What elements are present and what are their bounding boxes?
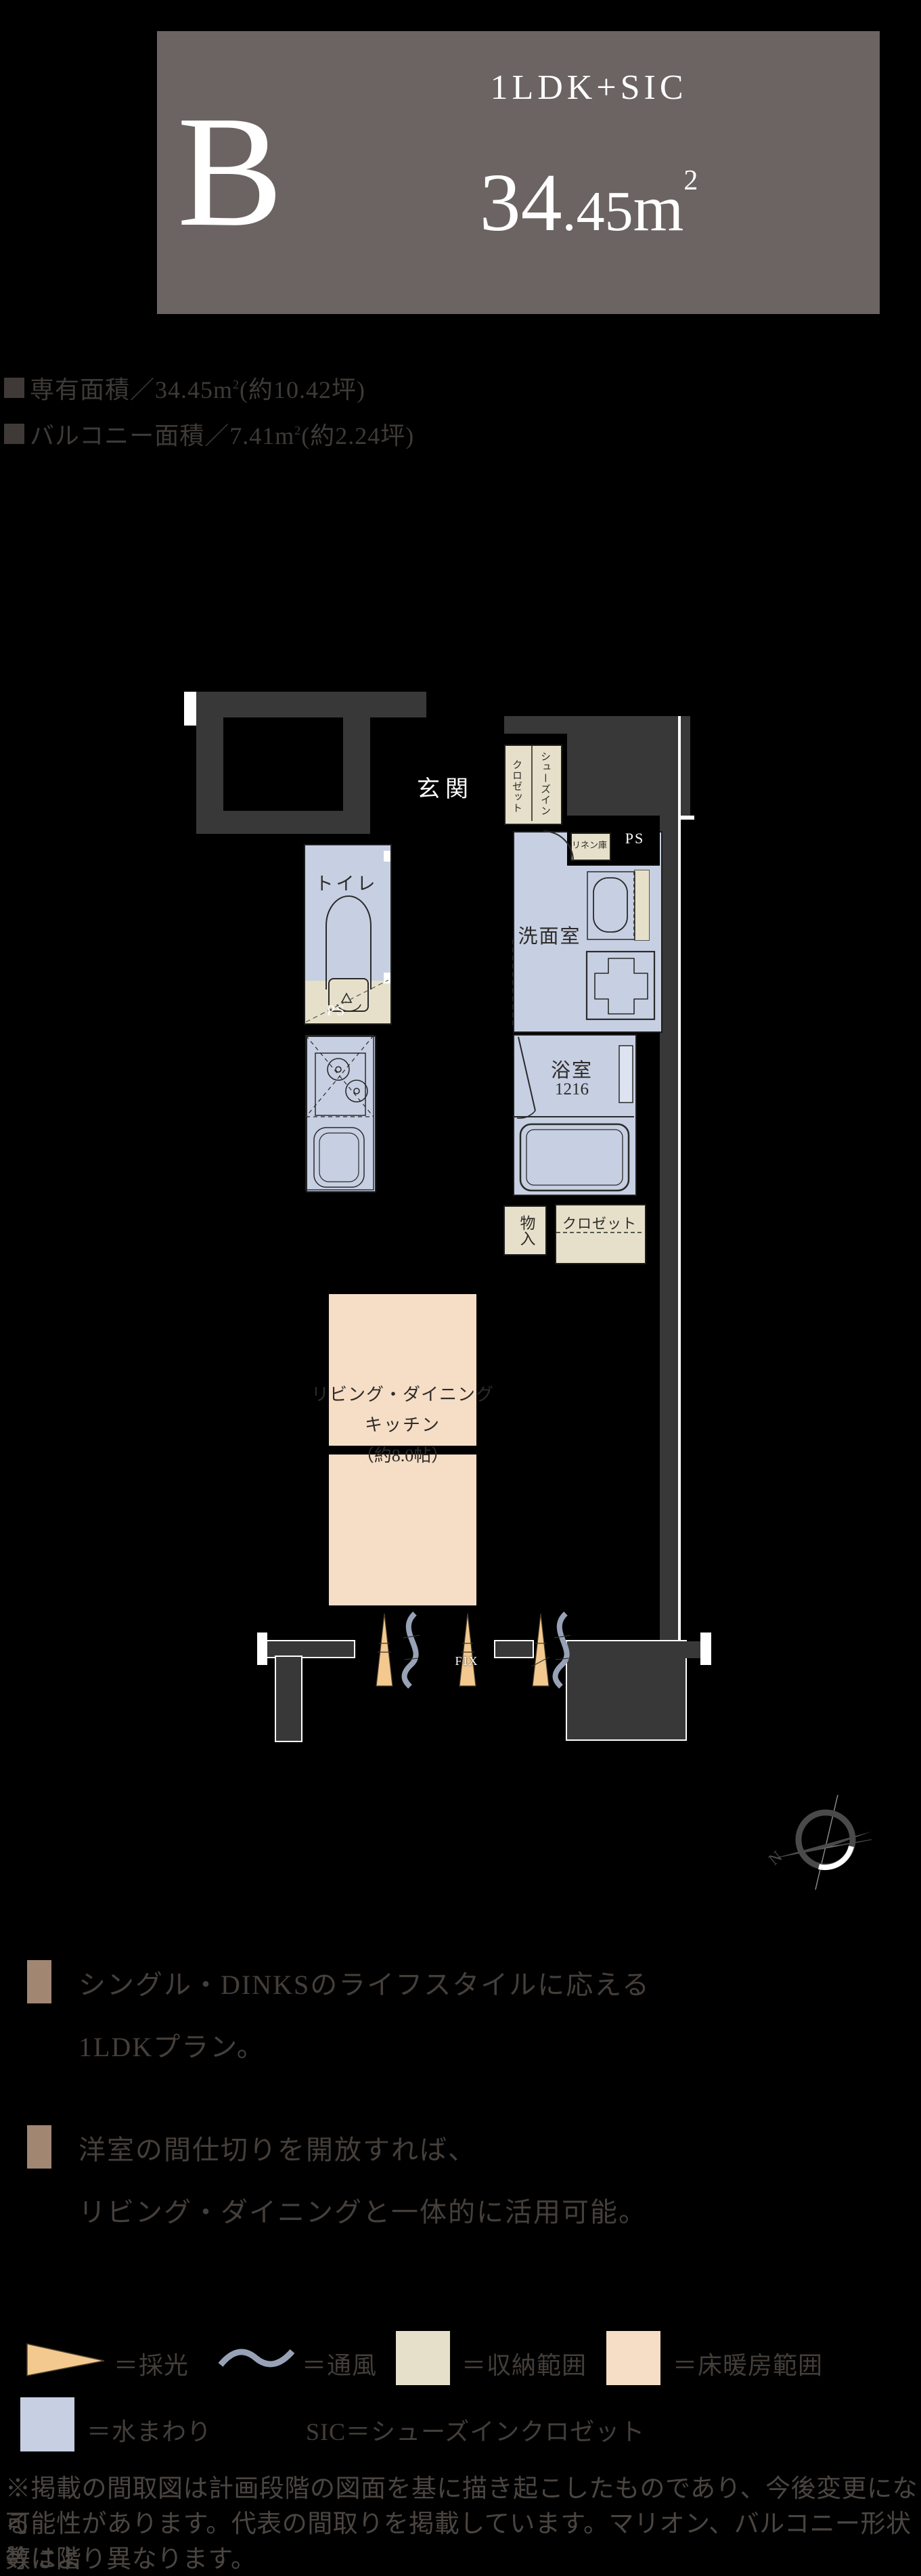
- area-sup: 2: [683, 165, 698, 196]
- daylight-arrow-icon: [376, 1614, 392, 1686]
- bullet-square-icon: [4, 424, 24, 444]
- layout-label: 1LDK+SIC: [379, 68, 799, 108]
- airflow-legend-label: ＝通風: [302, 2346, 377, 2381]
- area-size-label: 34.45m2: [379, 156, 799, 250]
- kitchen-stove: [315, 1053, 365, 1115]
- area-unit: m: [633, 172, 684, 244]
- ps-label-top: PS: [614, 830, 655, 847]
- linen-label: リネン庫: [571, 838, 608, 851]
- bathtub-inner: [526, 1130, 623, 1185]
- airflow-legend-icon: [217, 2342, 298, 2377]
- stove-burner: [346, 1080, 367, 1102]
- bath-niche: [619, 1046, 633, 1103]
- feature-bullet-icon: [27, 2125, 51, 2169]
- daylight-arrow-icon: [459, 1614, 476, 1686]
- washer-pan-cross: [595, 958, 648, 1014]
- floor-heating-legend-swatch: [606, 2331, 660, 2385]
- daylight-legend-label: ＝採光: [114, 2346, 189, 2381]
- floor-heating-legend-label: ＝床暖房範囲: [673, 2346, 823, 2381]
- ldk-label-line1: リビング・ダイニング: [308, 1381, 497, 1406]
- washroom-label: 洗面室: [509, 920, 590, 949]
- vanity-bowl: [593, 878, 627, 932]
- bullet-square-icon: [4, 378, 24, 398]
- daylight-legend-icon: [26, 2340, 107, 2378]
- washroom-door-arc: [543, 831, 573, 861]
- feature-1-line-2: 1LDKプラン。: [78, 2025, 891, 2064]
- daylight-arrow-icon: [533, 1614, 549, 1686]
- floor-plan-page: B 1LDK+SIC 34.45m2 専有面積／34.45m2(約10.42坪)…: [0, 0, 921, 2576]
- feature-2-line-2: リビング・ダイニングと一体的に活用可能。: [78, 2190, 891, 2229]
- fixtures-overlay: [173, 673, 707, 1898]
- exclusive-area-text: 専有面積／34.45m2(約10.42坪): [30, 370, 365, 405]
- feature-2-line-1: 洋室の間仕切りを開放すれば、: [78, 2128, 891, 2167]
- compass-icon: N: [758, 1787, 886, 1895]
- stove-burner: [328, 1059, 349, 1080]
- entrance-label: 玄関: [398, 770, 493, 803]
- plan-type-letter: B: [169, 39, 291, 310]
- disclaimer-line-3: 数により異なります。: [5, 2542, 919, 2576]
- toilet-fixture: [326, 896, 371, 990]
- bathtub-outer: [520, 1124, 629, 1191]
- storage-legend-swatch: [396, 2331, 450, 2385]
- sic-label-col1: シューズイン: [538, 750, 552, 818]
- bath-label: 浴室: [535, 1054, 609, 1083]
- water-legend-label: ＝水まわり: [87, 2412, 212, 2447]
- ps-label-toilet: PS: [316, 1002, 357, 1019]
- washer-pan: [587, 952, 654, 1019]
- bath-door-line: [518, 1037, 535, 1111]
- sic-label-col2: クロゼット: [510, 753, 524, 820]
- closet-label: クロゼット: [556, 1213, 643, 1233]
- fix-label: FIX: [440, 1654, 494, 1668]
- stove-burner: [354, 1088, 359, 1094]
- storage-label: 物入: [514, 1212, 537, 1249]
- kitchen-sink-inner: [319, 1133, 359, 1182]
- exclusive-area-row: 専有面積／34.45m2(約10.42坪): [4, 371, 613, 405]
- area-decimal: .45: [562, 180, 633, 243]
- storage-legend-label: ＝収納範囲: [462, 2346, 587, 2381]
- area-main: 34: [480, 157, 562, 248]
- ldk-label-line3: （約8.0帖）: [308, 1442, 497, 1467]
- stove-burner: [336, 1067, 341, 1072]
- balcony-area-row: バルコニー面積／7.41m2(約2.24坪): [4, 417, 613, 451]
- bath-size-label: 1216: [535, 1080, 609, 1099]
- feature-1-line-1: シングル・DINKSのライフスタイルに応える: [78, 1963, 891, 2002]
- balcony-area-text: バルコニー面積／7.41m2(約2.24坪): [30, 416, 414, 451]
- water-legend-swatch: [20, 2397, 74, 2451]
- airflow-wave-icon: [405, 1614, 416, 1687]
- feature-bullet-icon: [27, 1960, 51, 2003]
- ldk-label-line2: キッチン: [308, 1411, 497, 1436]
- airflow-wave-icon: [556, 1614, 567, 1687]
- sic-note-label: SIC＝シューズインクロゼット: [306, 2412, 645, 2447]
- compass-north-letter: N: [765, 1848, 786, 1869]
- toilet-label: トイレ: [306, 869, 387, 895]
